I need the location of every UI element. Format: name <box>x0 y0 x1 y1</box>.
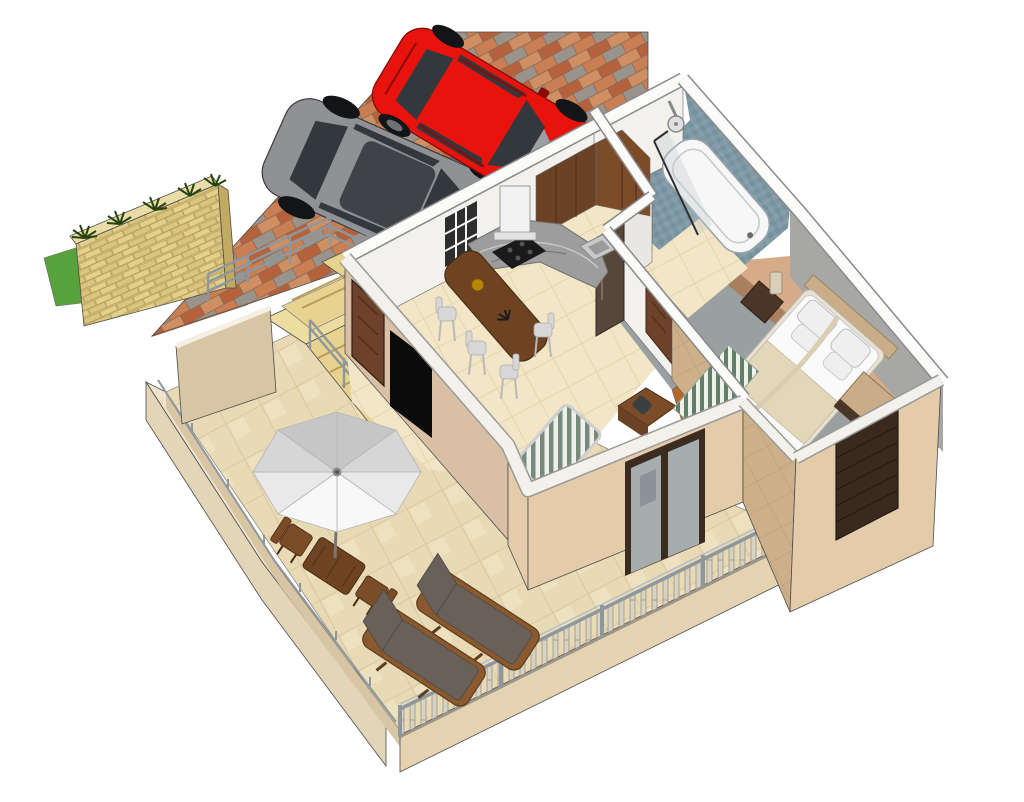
scene-svg <box>0 0 1024 802</box>
patio-door-pane <box>668 439 699 557</box>
bedside-lamp <box>770 272 782 294</box>
parasol-pole <box>335 530 336 558</box>
burner <box>520 242 525 247</box>
floor-plan-3d-render: Isometric 3D SketchUp-style render of a … <box>0 0 1024 802</box>
burner <box>528 250 533 255</box>
burner <box>508 248 513 253</box>
patio-door-pane <box>631 455 661 573</box>
shower-head-center <box>674 122 678 126</box>
extractor-hood <box>500 186 530 236</box>
extractor-hood-lip <box>494 232 536 240</box>
burner <box>516 256 521 261</box>
parasol-finial <box>335 470 339 474</box>
